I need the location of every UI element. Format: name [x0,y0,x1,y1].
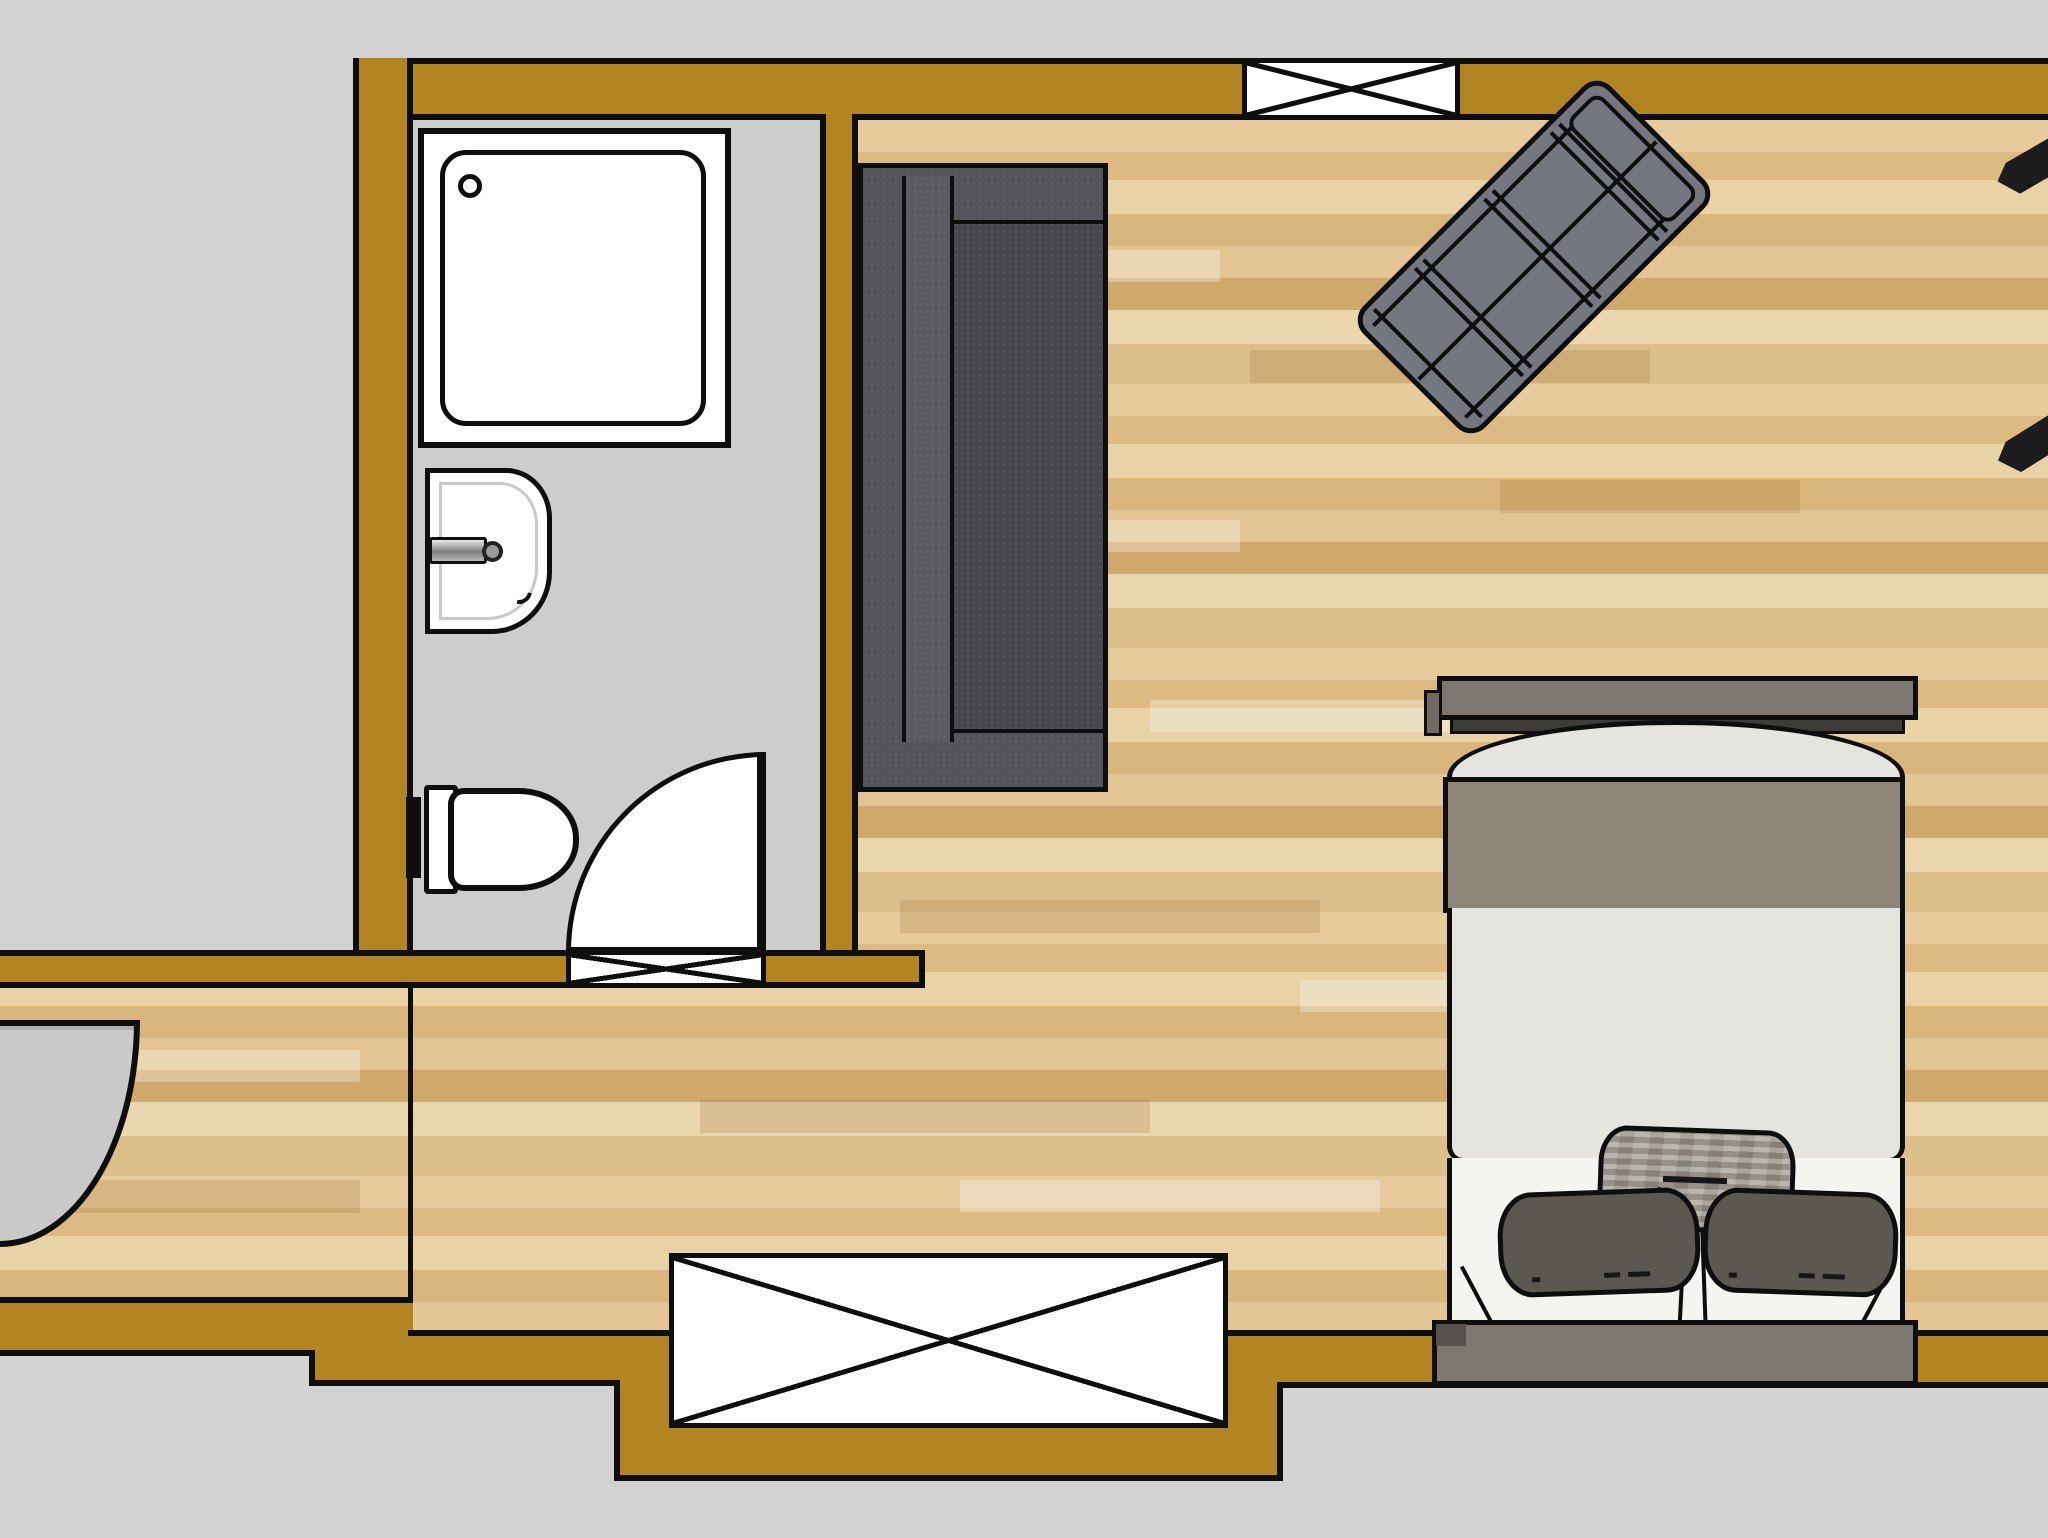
sofa-back-cushion [902,176,954,742]
wall-bathroom-right [820,114,858,988]
wall-left [353,58,413,952]
sofa-bottom-armrest [863,729,1103,787]
headboard-end-cap [1424,690,1442,736]
bed-base-end-cap [1436,1324,1466,1346]
sofa[interactable] [858,163,1108,792]
wall-bottom-b [312,1303,413,1380]
wall-bottom-a [0,1303,312,1350]
wall-top [353,58,2048,120]
window-niche-left [617,1336,669,1475]
wall-bathroom-bottom [0,950,566,988]
toilet[interactable] [448,788,579,891]
wall-stub-right-of-door [766,950,925,988]
pillow-right[interactable] [1701,1187,1900,1299]
exterior-area [0,0,353,952]
bathroom-door-threshold[interactable] [566,950,766,988]
window-top[interactable] [1242,58,1460,120]
window-bottom[interactable] [669,1253,1228,1428]
wall-step-edge-2 [614,1380,620,1478]
sofa-top-armrest [863,168,1103,224]
wall-bottom-a-edge [0,1350,315,1356]
window-niche-right [1228,1336,1280,1475]
bed-duvet[interactable] [1447,908,1905,1162]
shower-drain-icon [458,174,482,198]
pillow-left[interactable] [1496,1187,1702,1299]
floor-plan [0,0,2048,1538]
wall-bottom-bc-edge [309,1380,620,1386]
bed-blanket-band [1443,777,1905,913]
wall-bottom-c [408,1336,617,1380]
window-niche-bottom [669,1428,1228,1475]
toilet-flush-plate [406,797,421,878]
bed-base [1432,1320,1918,1386]
faucet-icon [429,537,487,564]
bed-headboard [1437,676,1918,720]
hallway-room-boundary [408,988,413,1333]
faucet-knob-icon [482,541,503,562]
niche-outer-edge [614,1475,1283,1481]
wall-step-edge-3 [1277,1382,1283,1478]
sofa-backrest [863,220,903,733]
